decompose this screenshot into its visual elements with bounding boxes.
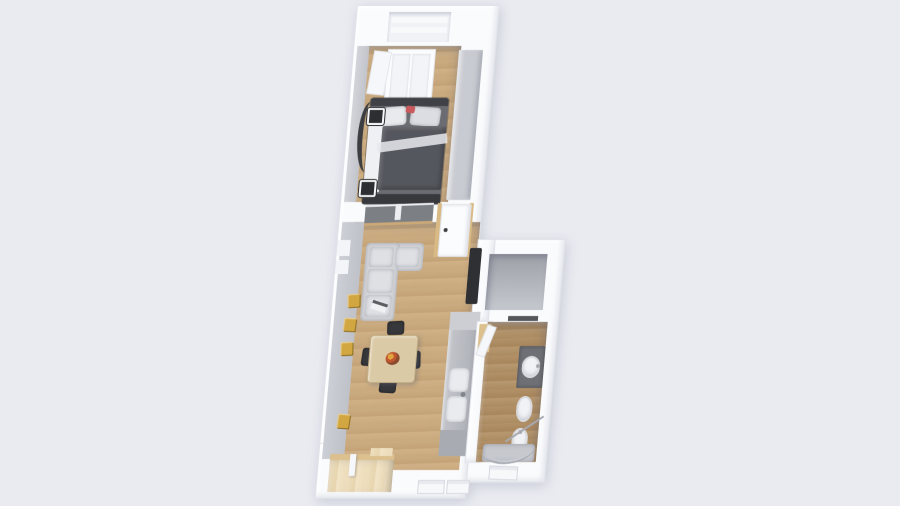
- wall-art-4[interactable]: [336, 414, 350, 429]
- bathroom-mirror-strip: [508, 316, 538, 321]
- wall-art-1[interactable]: [347, 294, 359, 308]
- floorplan: [270, 4, 613, 504]
- kitchen-counter-cap: [449, 312, 481, 330]
- bottom-window-2[interactable]: [446, 480, 470, 494]
- kitchen-sink-lower[interactable]: [445, 396, 467, 422]
- bottom-window-3[interactable]: [488, 465, 518, 480]
- living-floor-tongue: [393, 456, 460, 470]
- bedroom-wall-frame-upper[interactable]: [367, 108, 385, 125]
- storage-room-floor: [485, 254, 548, 310]
- bed-red-cushion: [405, 105, 415, 113]
- hall-door[interactable]: [437, 204, 472, 257]
- kitchen-sink-upper[interactable]: [448, 368, 470, 392]
- wall-art-3[interactable]: [340, 342, 352, 356]
- sofa-cushion-2: [394, 247, 420, 267]
- wall-art-2[interactable]: [343, 318, 357, 332]
- bedroom-wall-frame-lower[interactable]: [358, 180, 376, 197]
- sofa-cushion-3: [366, 269, 394, 293]
- sofa-cushion-1: [368, 247, 394, 267]
- scene-background: [0, 0, 900, 506]
- living-wall-window-notch-2[interactable]: [335, 260, 349, 274]
- bedroom-exterior-window-sill: [391, 17, 448, 23]
- bottom-window-1[interactable]: [417, 480, 445, 494]
- bed-headboard: [370, 98, 449, 106]
- living-wall-window-notch-1[interactable]: [336, 240, 350, 256]
- bedroom-exterior-window-sill-2: [391, 27, 448, 33]
- entry-opening: [370, 448, 393, 456]
- dining-chair-north[interactable]: [387, 321, 405, 336]
